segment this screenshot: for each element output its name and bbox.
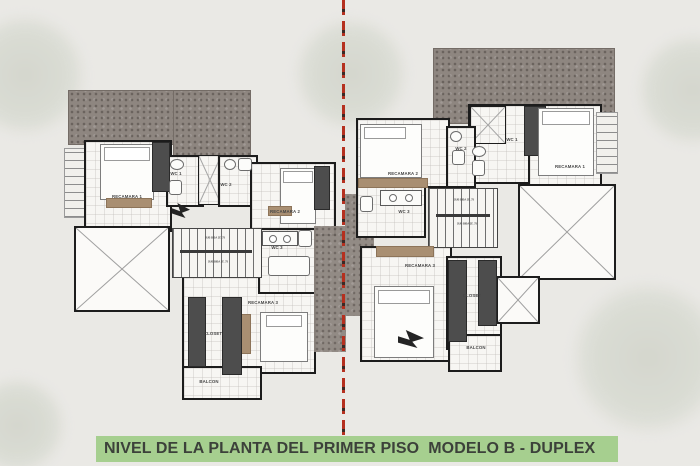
tree-blob bbox=[295, 18, 407, 130]
room-label: WC 1 bbox=[506, 138, 517, 142]
toilet bbox=[452, 150, 465, 165]
room-label: WC 3 bbox=[398, 210, 409, 214]
tree-blob bbox=[0, 378, 65, 466]
pillow bbox=[104, 147, 150, 161]
stair-note: SUB BIBA JE .75 bbox=[205, 237, 225, 240]
roof-slab-left bbox=[68, 90, 178, 145]
pillow bbox=[542, 111, 590, 125]
tree-blob bbox=[572, 282, 700, 434]
stair-rail bbox=[436, 214, 490, 217]
room-label: RECAMARA 2 bbox=[270, 210, 300, 214]
closet-block bbox=[314, 166, 330, 210]
room-label: RECAMARA 3 bbox=[248, 301, 278, 305]
room-label: BALCON bbox=[466, 346, 485, 350]
room-label: RECAMARA 1 bbox=[112, 195, 142, 199]
pillow bbox=[266, 315, 302, 327]
room-label: CLOSET bbox=[463, 294, 481, 298]
toilet bbox=[169, 180, 182, 195]
stairwell-right bbox=[428, 188, 498, 248]
stair-rail bbox=[180, 250, 252, 253]
double-sink-vanity bbox=[380, 190, 422, 206]
dresser bbox=[376, 246, 434, 257]
room-label: WC 2 bbox=[220, 183, 231, 187]
sink bbox=[224, 159, 236, 170]
page-title: NIVEL DE LA PLANTA DEL PRIMER PISO MODEL… bbox=[104, 440, 595, 458]
toilet bbox=[298, 230, 312, 247]
room-label: RECAMARA 1 bbox=[555, 165, 585, 169]
exterior-stairs bbox=[596, 112, 618, 174]
room-label: WC 3 bbox=[271, 246, 282, 250]
pillow bbox=[283, 171, 313, 183]
wardrobe bbox=[222, 297, 242, 375]
dresser bbox=[358, 178, 428, 188]
tree-blob bbox=[638, 35, 700, 145]
void-area-right-small bbox=[496, 276, 540, 324]
toilet bbox=[360, 196, 373, 212]
stairwell-left bbox=[172, 228, 262, 278]
wardrobe bbox=[448, 260, 467, 342]
stair-note: SUB BIBA JE .75 bbox=[208, 261, 228, 264]
dresser bbox=[106, 198, 152, 208]
double-sink-vanity bbox=[262, 231, 298, 246]
property-divider-line bbox=[342, 0, 345, 438]
room-label: CLOSET bbox=[204, 332, 222, 336]
room-label: RECAMARA 2 bbox=[388, 172, 418, 176]
toilet bbox=[472, 160, 485, 176]
room-label: BALCON bbox=[199, 380, 218, 384]
floor-plan: RECAMARA 1 WC 1 WC 2 RECAMARA 2 WC 3 REC… bbox=[0, 0, 700, 466]
bathtub bbox=[268, 256, 310, 276]
stair-note: SUB BIBA JE .75 bbox=[457, 223, 477, 226]
void-area-left bbox=[74, 226, 170, 312]
title-bar: NIVEL DE LA PLANTA DEL PRIMER PISO MODEL… bbox=[96, 436, 618, 462]
pillow bbox=[378, 290, 430, 304]
room-label: WC 2 bbox=[455, 147, 466, 151]
room-label: WC 1 bbox=[170, 172, 181, 176]
toilet bbox=[238, 158, 252, 171]
room-label: RECAMARA 3 bbox=[405, 264, 435, 268]
sink bbox=[170, 159, 184, 170]
pillow bbox=[364, 127, 406, 139]
closet-block bbox=[152, 142, 170, 192]
sink bbox=[472, 146, 486, 157]
void-area-right-large bbox=[518, 184, 616, 280]
stair-note: SUB BIBA JE .75 bbox=[454, 199, 474, 202]
sink bbox=[450, 131, 462, 142]
